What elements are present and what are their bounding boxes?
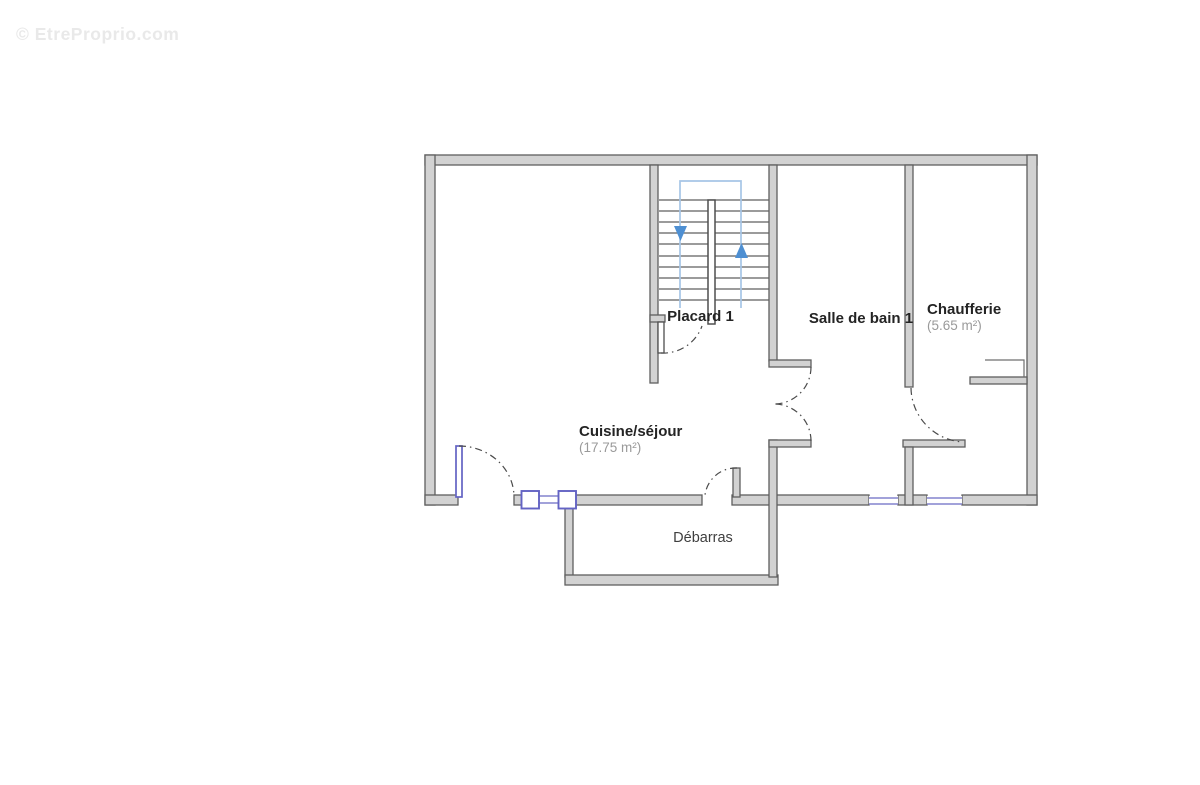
bottom-wall-segment	[962, 495, 1037, 505]
wall-stairwell-bathroom	[769, 165, 777, 361]
boilerroom-door-stub	[903, 440, 965, 447]
wall-bathroom-boilerroom-lower	[905, 447, 913, 505]
window-post-left	[522, 491, 540, 509]
staircase	[659, 181, 769, 324]
entry-door-arc	[459, 446, 514, 496]
placard-door-leaf	[658, 322, 664, 353]
outer-wall-right	[1027, 155, 1037, 505]
room-name-cuisine-sejour: Cuisine/séjour	[579, 423, 682, 440]
room-label-chaufferie: Chaufferie (5.65 m²)	[927, 301, 1001, 334]
room-name-chaufferie: Chaufferie	[927, 301, 1001, 318]
room-area-chaufferie: (5.65 m²)	[927, 318, 1001, 334]
debarras-door-arc	[705, 468, 737, 495]
outer-wall-left	[425, 155, 435, 505]
room-label-cuisine-sejour: Cuisine/séjour (17.75 m²)	[579, 423, 682, 456]
room-label-salle-de-bain: Salle de bain 1	[786, 310, 936, 327]
hall-debarras-wall-right	[769, 440, 777, 577]
placard-door-arc	[661, 326, 702, 353]
bottom-wall-segment	[732, 495, 869, 505]
window-post-right	[559, 491, 577, 509]
wall-cuisine-stairwell	[650, 165, 658, 383]
room-area-cuisine-sejour: (17.75 m²)	[579, 440, 682, 456]
wall-bathroom-boilerroom	[905, 165, 913, 387]
debarras-wall-left	[565, 505, 573, 577]
entry-door-leaf	[456, 446, 462, 497]
outer-wall-top	[425, 155, 1037, 165]
boilerroom-door-arc	[911, 388, 963, 442]
boilerroom-partition-stub	[970, 377, 1027, 384]
window-1	[869, 496, 898, 504]
boiler-equipment-outline	[985, 360, 1024, 377]
floorplan-drawing	[0, 0, 1200, 785]
bottom-wall-segment	[425, 495, 458, 505]
debarras-door-leaf	[733, 468, 740, 497]
floorplan-image: © EtreProprio.com	[0, 0, 1200, 785]
room-label-debarras: Débarras	[643, 530, 763, 547]
window-unit-with-posts	[522, 491, 577, 509]
room-label-placard: Placard 1	[640, 308, 761, 325]
bottom-wall-segment	[575, 495, 702, 505]
debarras-wall-bottom	[565, 575, 778, 585]
up-arrow-icon	[735, 243, 748, 258]
stair-center-rail	[708, 200, 715, 324]
hall-door-stub-bottom	[769, 440, 811, 447]
double-door-arc-top	[775, 367, 811, 404]
hall-door-stub-top	[769, 360, 811, 367]
window-2	[927, 496, 962, 504]
double-door-arc-bottom	[775, 404, 811, 441]
